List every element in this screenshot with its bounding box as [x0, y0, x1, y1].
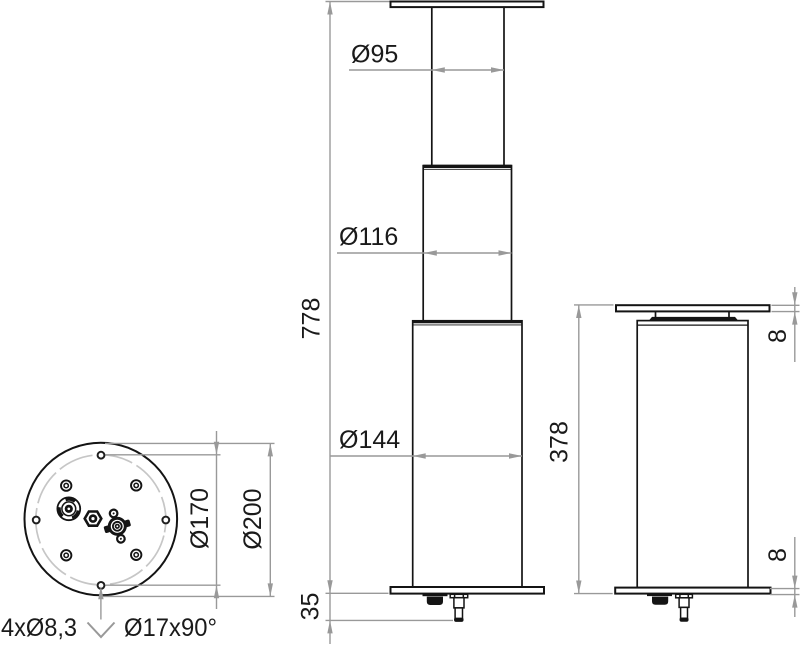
svg-text:35: 35 — [297, 593, 325, 621]
svg-text:8: 8 — [764, 329, 792, 343]
svg-text:778: 778 — [298, 298, 326, 340]
svg-text:4xØ8,3: 4xØ8,3 — [1, 614, 77, 642]
svg-text:Ø95: Ø95 — [351, 41, 398, 69]
svg-text:Ø17x90°: Ø17x90° — [124, 614, 217, 642]
svg-text:Ø116: Ø116 — [339, 223, 398, 251]
svg-text:Ø144: Ø144 — [339, 426, 400, 454]
svg-text:Ø170: Ø170 — [186, 488, 214, 549]
svg-text:378: 378 — [546, 421, 574, 463]
svg-text:8: 8 — [764, 548, 792, 562]
svg-text:Ø200: Ø200 — [239, 488, 267, 549]
